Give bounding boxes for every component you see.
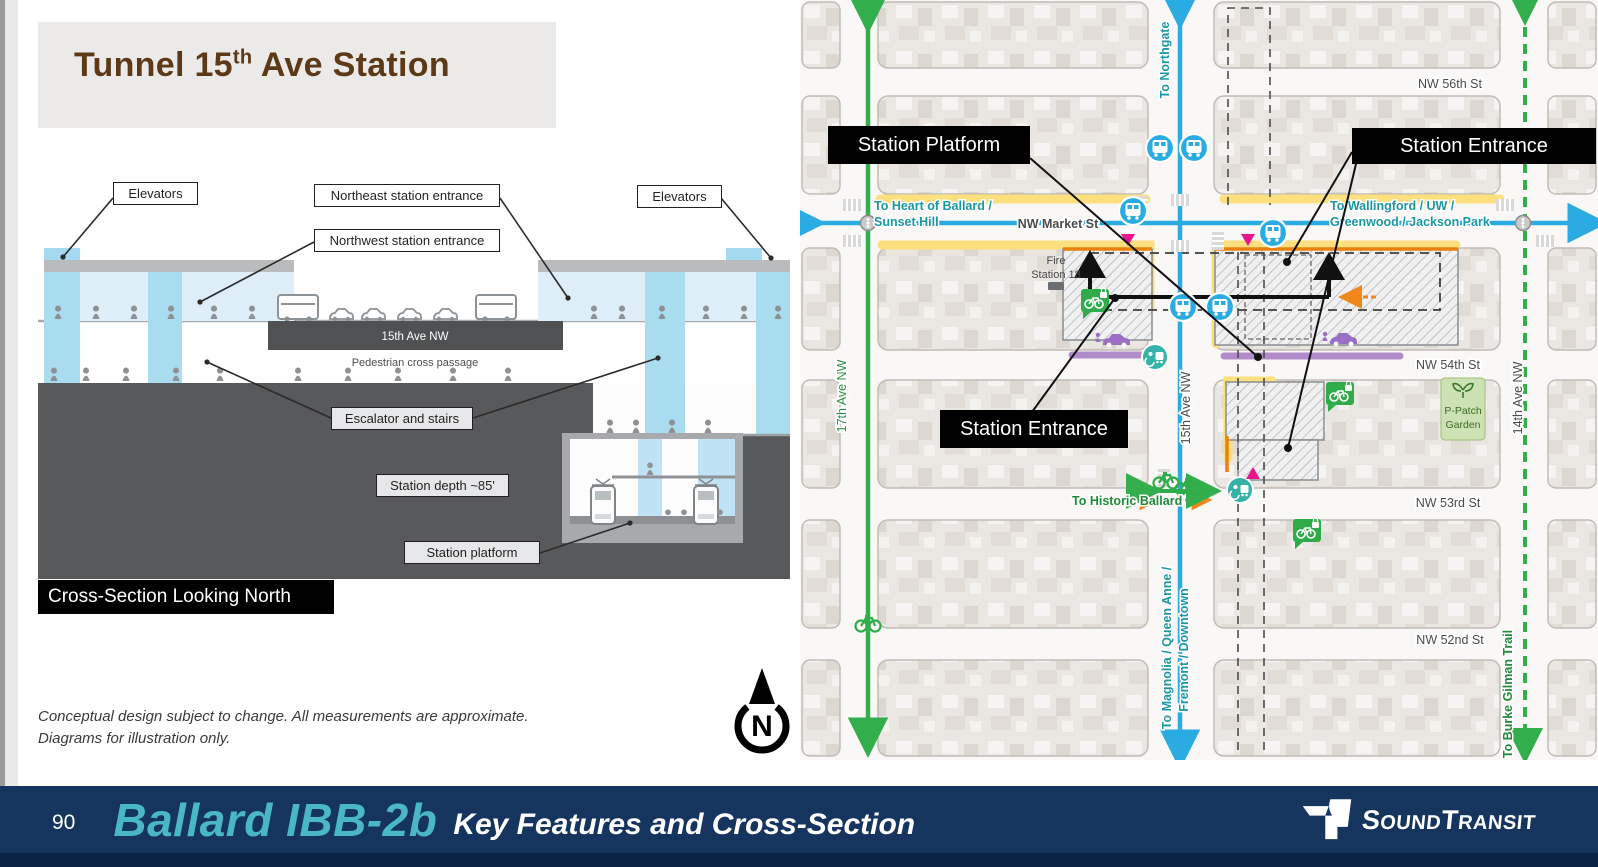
dir-to-magnolia: To Magnolia / Queen Anne /	[1160, 566, 1174, 729]
label-northwest-entrance: Northwest station entrance	[314, 229, 500, 252]
footer-bottom-strip	[0, 853, 1598, 867]
soundtransit-logo: SOUNDTRANSIT	[1301, 794, 1536, 846]
compass-n-label: N	[751, 710, 773, 743]
window-edge-light	[5, 0, 18, 867]
dir-fremont-downtown: Fremont / Downtown	[1177, 588, 1191, 712]
street-label-17th-ave: 17th Ave NW	[835, 359, 849, 432]
street-label-56th: NW 56th St	[1418, 77, 1482, 91]
callout-station-platform: Station Platform	[858, 134, 1000, 156]
car-icon	[362, 309, 385, 321]
cross-section-diagram: 15th Ave NW Pedestrian cross passage	[38, 172, 798, 618]
bus-stop-icon	[1169, 293, 1197, 321]
bus-stop-icon	[1206, 293, 1234, 321]
accessible-bus-icon	[1227, 477, 1253, 503]
page-number: 90	[52, 805, 75, 835]
cross-section-caption: Cross-Section Looking North	[38, 580, 334, 614]
footer-title-rest: Key Features and Cross-Section	[453, 798, 915, 842]
compass-needle	[749, 668, 775, 704]
fire-station-label-2: Station 18	[1031, 269, 1081, 281]
train-icon	[591, 479, 615, 524]
traffic-signal-icon	[1516, 216, 1531, 231]
soundtransit-logo-mark	[1301, 797, 1353, 843]
label-elevators-right: Elevators	[637, 185, 722, 208]
street-label-52nd: NW 52nd St	[1416, 633, 1484, 647]
dir-to-burke-gilman: To Burke Gilman Trail	[1501, 630, 1515, 758]
dir-to-heart-of-ballard: To Heart of Ballard /	[874, 199, 992, 213]
accessible-bus-icon	[1142, 344, 1168, 370]
bus-stop-icon	[1146, 134, 1174, 162]
p-patch-label-2: Garden	[1445, 419, 1480, 431]
street-bar-label: 15th Ave NW	[382, 331, 449, 343]
car-icon	[398, 309, 421, 321]
car-icon	[330, 309, 353, 321]
pedestrian-passage-label: Pedestrian cross passage	[352, 357, 479, 369]
car-icon	[434, 309, 457, 321]
street-label-15th-ave: 15th Ave NW	[1179, 371, 1193, 444]
street-label-54th: NW 54th St	[1416, 358, 1480, 372]
p-patch-garden: P-Patch Garden	[1441, 378, 1485, 440]
slide: Tunnel 15th Ave Station	[0, 0, 1598, 867]
label-station-depth: Station depth ~85'	[376, 474, 509, 497]
p-patch-label-1: P-Patch	[1444, 405, 1482, 417]
footer-title-highlight: Ballard IBB-2b	[113, 793, 437, 847]
label-northeast-entrance: Northeast station entrance	[314, 184, 500, 207]
fire-station-label-1: Fire	[1047, 255, 1066, 267]
label-escalator-stairs: Escalator and stairs	[331, 407, 473, 430]
north-arrow: N	[729, 664, 795, 764]
canopy-right	[538, 260, 790, 272]
dir-to-northgate: To Northgate	[1158, 22, 1172, 99]
dir-to-historic-ballard: To Historic Ballard	[1072, 494, 1182, 508]
street-label-market: NW Market St	[1018, 217, 1099, 231]
street-label-53rd: NW 53rd St	[1416, 496, 1481, 510]
bus-vehicle-icon	[476, 295, 516, 322]
pickup-dropoff-bands	[1072, 355, 1400, 356]
dir-sunset-hill: Sunset Hill	[874, 215, 939, 229]
station-area-map: P-Patch Garden Fire Station 18 NW 56th S…	[800, 0, 1598, 760]
title-box: Tunnel 15th Ave Station	[38, 22, 556, 128]
fire-truck-icon	[1048, 282, 1064, 290]
bus-stop-icon	[1259, 219, 1287, 247]
bus-vehicle-icon	[278, 295, 318, 322]
dir-greenwood-jackson: Greenwood / Jackson Park	[1330, 215, 1490, 229]
disclaimer: Conceptual design subject to change. All…	[38, 706, 529, 750]
callout-station-entrance-ne: Station Entrance	[1400, 135, 1548, 157]
label-station-platform: Station platform	[404, 541, 540, 564]
page-title: Tunnel 15th Ave Station	[74, 46, 556, 85]
dir-to-wallingford: To Wallingford / UW /	[1330, 199, 1455, 213]
label-elevators-left: Elevators	[113, 182, 198, 205]
callout-station-entrance-sw: Station Entrance	[960, 418, 1108, 440]
soundtransit-logo-text: SOUNDTRANSIT	[1361, 805, 1538, 836]
bus-stop-icon	[1119, 197, 1147, 225]
street-label-14th-ave: 14th Ave NW	[1511, 361, 1525, 434]
train-icon	[694, 479, 718, 524]
bus-stop-icon	[1180, 134, 1208, 162]
canopy-left	[44, 260, 294, 272]
